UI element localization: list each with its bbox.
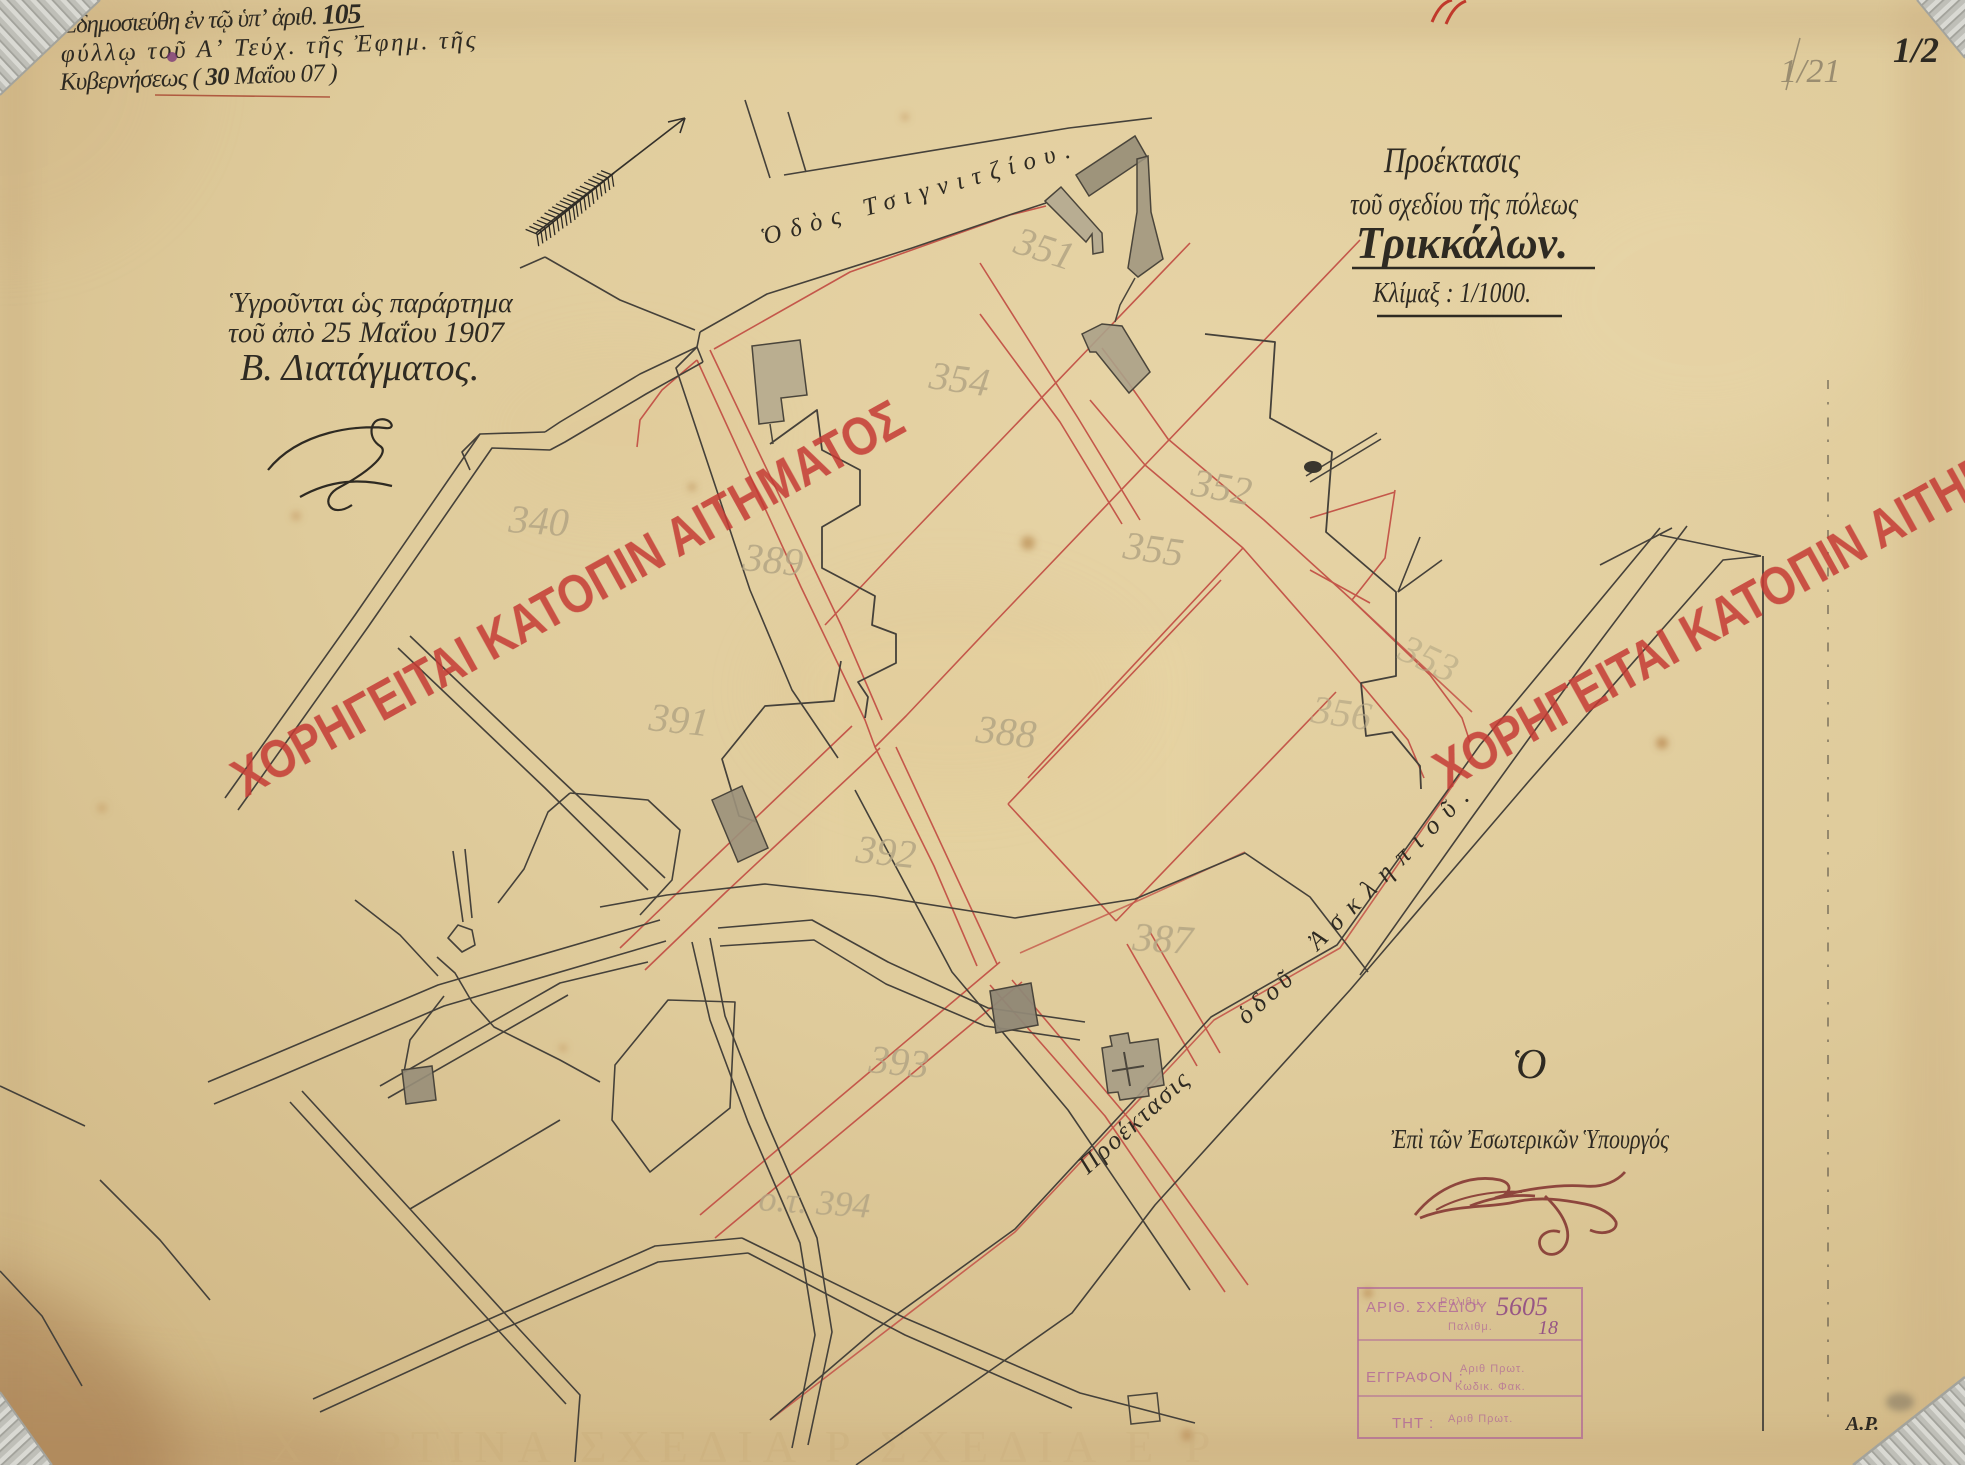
- svg-text:Αριθ Πρωτ.: Αριθ Πρωτ.: [1460, 1363, 1525, 1375]
- svg-text:392: 392: [853, 826, 918, 877]
- svg-text:Κωδικ. Φακ.: Κωδικ. Φακ.: [1455, 1381, 1526, 1393]
- svg-text:Ραλιθμ.: Ραλιθμ.: [1440, 1296, 1484, 1308]
- svg-text:388: 388: [973, 706, 1038, 757]
- svg-text:1/2: 1/2: [1893, 30, 1939, 70]
- svg-text:ΕΓΓΡΑΦΟΝ :: ΕΓΓΡΑΦΟΝ :: [1366, 1369, 1464, 1386]
- svg-text:354: 354: [926, 352, 993, 405]
- svg-text:Παλιθμ.: Παλιθμ.: [1448, 1321, 1493, 1333]
- svg-text:389: 389: [740, 534, 805, 585]
- svg-text:Αριθ Πρωτ.: Αριθ Πρωτ.: [1448, 1413, 1513, 1425]
- svg-text:Ὁ: Ὁ: [1512, 1042, 1546, 1088]
- svg-text:ο.τ. 394: ο.τ. 394: [757, 1178, 871, 1226]
- svg-text:340: 340: [506, 496, 570, 545]
- svg-text:Α.Ρ.: Α.Ρ.: [1844, 1413, 1879, 1435]
- svg-text:355: 355: [1120, 522, 1187, 575]
- svg-text:τοῦ ἀπὸ 25 Μαΐου 1907: τοῦ ἀπὸ 25 Μαΐου 1907: [228, 316, 506, 349]
- svg-text:τοῦ σχεδίου τῆς πόλεως: τοῦ σχεδίου τῆς πόλεως: [1350, 186, 1578, 221]
- svg-text:Β. Διατάγματος.: Β. Διατάγματος.: [240, 347, 479, 389]
- svg-text:ΣΧΕΔΙΑ Ε Ρ: ΣΧΕΔΙΑ Ε Ρ: [880, 1421, 1220, 1465]
- svg-text:Προέκτασις: Προέκτασις: [1383, 140, 1520, 180]
- svg-text:Ἐπὶ τῶν Ἐσωτερικῶν Ὑπουργός: Ἐπὶ τῶν Ἐσωτερικῶν Ὑπουργός: [1391, 1124, 1670, 1154]
- svg-text:391: 391: [646, 694, 711, 745]
- svg-text:356: 356: [1308, 686, 1375, 739]
- svg-text:Κλίμαξ : 1/1000.: Κλίμαξ : 1/1000.: [1372, 278, 1531, 309]
- svg-text:387: 387: [1130, 914, 1196, 963]
- svg-text:Ὑγροῦνται ὡς παράρτημα: Ὑγροῦνται ὡς παράρτημα: [230, 288, 514, 319]
- svg-text:ΤΗΤ :: ΤΗΤ :: [1392, 1415, 1434, 1432]
- svg-text:393: 393: [866, 1036, 931, 1087]
- svg-text:Τρικκάλων.: Τρικκάλων.: [1356, 217, 1568, 268]
- svg-text:Χ ΑΡΤΙΝΑ ΣΧΕΔΙΑ Ρ: Χ ΑΡΤΙΝΑ ΣΧΕΔΙΑ Ρ: [270, 1421, 861, 1465]
- svg-text:18: 18: [1538, 1317, 1558, 1339]
- svg-text:1/21: 1/21: [1780, 53, 1840, 90]
